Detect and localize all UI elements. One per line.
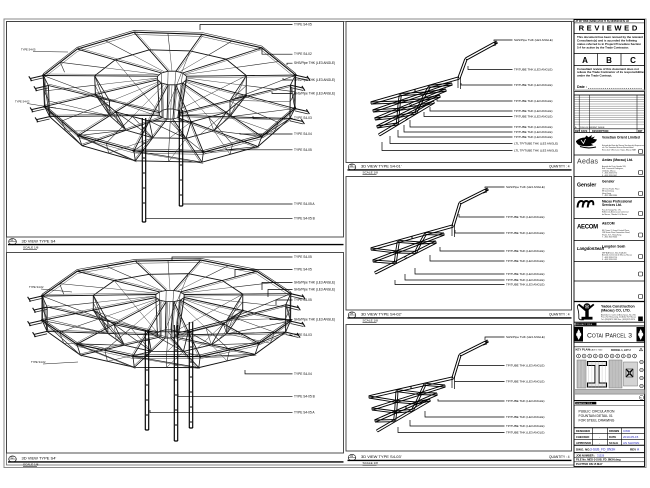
- svg-text:TYPE S4-05 B: TYPE S4-05 B: [294, 216, 315, 220]
- svg-text:TP/TUBE THK (LE3 ANGLE): TP/TUBE THK (LE3 ANGLE): [506, 278, 544, 282]
- svg-text:AS SHOWN: AS SHOWN: [623, 441, 639, 445]
- svg-text:DATE: DATE: [581, 130, 588, 133]
- svg-text:TP/TUBE THK (LE3 ANGLE): TP/TUBE THK (LE3 ANGLE): [514, 115, 552, 119]
- svg-text:DESIGNED: DESIGNED: [576, 429, 590, 433]
- svg-text:SHS/Pipe THK (LE3 ANGLE): SHS/Pipe THK (LE3 ANGLE): [294, 78, 335, 82]
- svg-text:DWG. NO.: DWG. NO.: [576, 448, 590, 452]
- svg-text:T + 852 2868 9380: T + 852 2868 9380: [602, 195, 617, 197]
- svg-text:2010-05-15: 2010-05-15: [623, 435, 639, 439]
- svg-text:CWD: CWD: [623, 429, 631, 433]
- svg-text:TP/TUBE THK (LE3 ANGLE): TP/TUBE THK (LE3 ANGLE): [506, 215, 544, 219]
- svg-text:A: A: [582, 56, 588, 65]
- svg-text:Tel : (853)2875 3382 Fax : (: Tel : (853)2875 3382 Fax : (853)2875 337…: [601, 319, 635, 321]
- svg-text:AECOM: AECOM: [577, 225, 598, 231]
- svg-text:TYPE S4-05: TYPE S4-05: [294, 255, 312, 259]
- svg-text:3D VIEW TYPE S4': 3D VIEW TYPE S4': [22, 456, 57, 461]
- svg-text:LTL TP/TUBE THK (LE3 ANGLE): LTL TP/TUBE THK (LE3 ANGLE): [514, 149, 558, 153]
- svg-text:PARCEL 1, LOT 2: PARCEL 1, LOT 2: [611, 349, 631, 352]
- svg-text:Langdon Seah: Langdon Seah: [602, 244, 625, 248]
- svg-text:TP/TUBE THK (LE3 ANGLE): TP/TUBE THK (LE3 ANGLE): [514, 99, 552, 103]
- svg-text:DESCRIPTION: DESCRIPTION: [592, 130, 609, 133]
- svg-text:-: -: [599, 436, 600, 439]
- svg-text:3-SUB_FD_8N3H: 3-SUB_FD_8N3H: [590, 448, 616, 452]
- svg-text:under the Trade Contract.: under the Trade Contract.: [577, 74, 612, 78]
- svg-text:TP/TUBE THK (LE3 ANGLE): TP/TUBE THK (LE3 ANGLE): [506, 415, 544, 419]
- svg-text:SHS/Pipe THK (LE3 ANGLE): SHS/Pipe THK (LE3 ANGLE): [506, 335, 545, 339]
- svg-text:TYPE S4-05: TYPE S4-05: [294, 298, 312, 302]
- svg-text:SCALE 1:7500: SCALE 1:7500: [589, 348, 603, 351]
- svg-text:-: -: [599, 442, 600, 445]
- svg-text:Aedas: Aedas: [577, 159, 599, 166]
- svg-text:T + 852 3922 9000: T + 852 3922 9000: [602, 237, 617, 239]
- svg-text:FOR STEEL DRAWING: FOR STEEL DRAWING: [579, 419, 615, 423]
- svg-text:TYPE S4-05: TYPE S4-05: [21, 48, 36, 52]
- svg-text:PUBLIC CIRCULATION: PUBLIC CIRCULATION: [579, 410, 615, 414]
- svg-text:TYPE S4-02: TYPE S4-02: [29, 285, 44, 289]
- svg-text:SHS/Pipe THK (LE3 ANGLE): SHS/Pipe THK (LE3 ANGLE): [514, 38, 553, 42]
- svg-text:SCALE 1/8: SCALE 1/8: [363, 461, 379, 465]
- svg-text:SCALE 1/8: SCALE 1/8: [363, 171, 379, 175]
- svg-text:TP/TUBE THK (LE3 ANGLE): TP/TUBE THK (LE3 ANGLE): [514, 68, 552, 72]
- svg-text:SCALE: SCALE: [609, 441, 618, 445]
- svg-text:3D VIEW TYPE S4-02': 3D VIEW TYPE S4-02': [361, 312, 402, 317]
- svg-text:TP/TUBE THK (LE3 ANGLE): TP/TUBE THK (LE3 ANGLE): [514, 130, 552, 134]
- svg-text:31526: 31526: [597, 453, 605, 457]
- svg-text:Executive Offices-L2, Taipa, M: Executive Offices-L2, Taipa, Macao SAR: [602, 148, 637, 151]
- svg-text:SHS/Pipe THK (LE3 ANGLE): SHS/Pipe THK (LE3 ANGLE): [294, 281, 335, 285]
- svg-text:TYPE S4-02: TYPE S4-02: [294, 52, 312, 56]
- svg-text:TP/TUBE THK (LE3 ANGLE): TP/TUBE THK (LE3 ANGLE): [506, 231, 544, 235]
- svg-text:Venetian Orient Limited: Venetian Orient Limited: [602, 136, 640, 140]
- svg-text:TP/TUBE THK (LE3 ANGLE): TP/TUBE THK (LE3 ANGLE): [506, 249, 544, 253]
- svg-text:TYPE S4-03: TYPE S4-03: [294, 333, 312, 337]
- svg-text:SCALE 1/8: SCALE 1/8: [23, 245, 39, 249]
- svg-text:INIT: INIT: [638, 130, 643, 133]
- svg-text:TYPE S4-05 A: TYPE S4-05 A: [294, 411, 315, 415]
- svg-text:DRAWN: DRAWN: [609, 429, 619, 433]
- svg-text:KEY PLAN: KEY PLAN: [576, 348, 590, 352]
- svg-text:AECOM: AECOM: [602, 221, 615, 225]
- svg-text:FILE No. MED-3-SUB_FD_8N3H.dwg: FILE No. MED-3-SUB_FD_8N3H.dwg: [576, 458, 621, 462]
- svg-text:SHS/Pipe THK (LE3 ANGLE): SHS/Pipe THK (LE3 ANGLE): [294, 61, 335, 65]
- svg-text:REV: REV: [630, 448, 636, 452]
- svg-text:(Macau) CO, LTD.: (Macau) CO, LTD.: [601, 309, 631, 313]
- svg-text:TP/TUBE THK (LE3 ANGLE): TP/TUBE THK (LE3 ANGLE): [506, 399, 544, 403]
- svg-text:TP/TUBE THK (LE3 ANGLE): TP/TUBE THK (LE3 ANGLE): [514, 83, 552, 87]
- svg-text:TYPE S4-05 B: TYPE S4-05 B: [294, 394, 315, 398]
- svg-text:TP/TUBE THK (LE3 ANGLE): TP/TUBE THK (LE3 ANGLE): [506, 380, 544, 384]
- svg-text:REVIEWED: REVIEWED: [579, 24, 640, 33]
- svg-text:Gensler: Gensler: [602, 179, 615, 183]
- svg-text:TP/TUBE THK (LE3 ANGLE): TP/TUBE THK (LE3 ANGLE): [514, 135, 552, 139]
- svg-text:SHS/Pipe THK (LE3 ANGLE): SHS/Pipe THK (LE3 ANGLE): [506, 185, 545, 189]
- svg-text:SHS/Pipe THK (LE3 ANGLE): SHS/Pipe THK (LE3 ANGLE): [294, 318, 335, 322]
- svg-text:REV: REV: [575, 130, 580, 133]
- svg-text:DATE: DATE: [609, 435, 616, 439]
- svg-text:C: C: [630, 56, 636, 65]
- svg-text:3D VIEW TYPE S4: 3D VIEW TYPE S4: [22, 238, 57, 243]
- svg-text:TP/TUBE THK (LE3 ANGLE): TP/TUBE THK (LE3 ANGLE): [506, 259, 544, 263]
- svg-text:Services Ltd.: Services Ltd.: [602, 203, 622, 207]
- svg-text:de Macau, 7 Andar F-G, Macau: de Macau, 7 Andar F-G, Macau: [602, 213, 627, 216]
- svg-text:TP/TUBE THK (LE3 ANGLE): TP/TUBE THK (LE3 ANGLE): [506, 424, 544, 428]
- svg-text:DRAWING TITLE: DRAWING TITLE: [576, 402, 593, 405]
- svg-text:QUANTITY : 4: QUANTITY : 4: [549, 313, 570, 317]
- svg-text:SCALE 1/8: SCALE 1/8: [363, 319, 379, 323]
- svg-text:TP/TUBE THK (LE3 ANGLE): TP/TUBE THK (LE3 ANGLE): [514, 125, 552, 129]
- svg-text:TYPE S4-05: TYPE S4-05: [294, 23, 312, 27]
- svg-text:QUANTITY : 4: QUANTITY : 4: [549, 455, 570, 459]
- svg-text:TP/TUBE THK (LE3 ANGLE): TP/TUBE THK (LE3 ANGLE): [506, 272, 544, 276]
- svg-text:JOB NUMBER :: JOB NUMBER :: [576, 453, 595, 457]
- svg-text:CHECKED: CHECKED: [576, 435, 589, 439]
- svg-text:TP/TUBE THK (LE3 ANGLE): TP/TUBE THK (LE3 ANGLE): [514, 109, 552, 113]
- svg-text:SHS/Pipe THK (LE3 ANGLE): SHS/Pipe THK (LE3 ANGLE): [294, 92, 335, 96]
- svg-text:APPROVED: APPROVED: [576, 441, 591, 445]
- svg-text:5.4 for action by the Trade Co: 5.4 for action by the Trade Contractor.: [577, 45, 629, 49]
- svg-text:3D VIEW TYPE S4-01': 3D VIEW TYPE S4-01': [361, 164, 402, 169]
- svg-text:F + 853 2833 1532: F + 853 2833 1532: [602, 259, 617, 261]
- svg-text:FOUNTAIN DETAIL 01: FOUNTAIN DETAIL 01: [579, 414, 613, 418]
- svg-text:PLOTTED ON 15 MAY: PLOTTED ON 15 MAY: [576, 462, 603, 466]
- svg-text:TYPE S4-04: TYPE S4-04: [294, 132, 312, 136]
- svg-text:QUANTITY : 4: QUANTITY : 4: [549, 165, 570, 169]
- svg-text:TP/TUBE THK (LE3 ANGLE): TP/TUBE THK (LE3 ANGLE): [506, 283, 544, 287]
- svg-text:TYPE S4-04: TYPE S4-04: [294, 372, 312, 376]
- svg-text:Date :: Date :: [577, 85, 587, 89]
- svg-text:Aedas (Macau) Ltd.: Aedas (Macau) Ltd.: [602, 158, 633, 162]
- svg-text:TYPE S4-05: TYPE S4-05: [294, 268, 312, 272]
- svg-text:COTAI PARCEL 3: COTAI PARCEL 3: [587, 332, 632, 339]
- svg-text:TYPE S4-02: TYPE S4-02: [31, 360, 46, 364]
- svg-text:LTL TP/TUBE THK (LE3 ANGLE): LTL TP/TUBE THK (LE3 ANGLE): [514, 142, 558, 146]
- svg-text:LangdonSeah: LangdonSeah: [577, 246, 605, 251]
- svg-text:TP/TUBE THK (LE3 ANGLE): TP/TUBE THK (LE3 ANGLE): [506, 364, 544, 368]
- svg-text:TYPE S4-05: TYPE S4-05: [294, 148, 312, 152]
- svg-text:B: B: [606, 56, 612, 65]
- svg-text:SHS/Pipe THK (LE3 ANGLE): SHS/Pipe THK (LE3 ANGLE): [294, 288, 335, 292]
- svg-text:3D VIEW TYPE S4-03': 3D VIEW TYPE S4-03': [361, 454, 402, 459]
- svg-text:Gensler: Gensler: [577, 183, 596, 189]
- svg-text:TYPE S4-03: TYPE S4-03: [294, 116, 312, 120]
- svg-text:TYPE S4-05 A: TYPE S4-05 A: [294, 202, 315, 206]
- svg-text:TP/TUBE THK (LE3 ANGLE): TP/TUBE THK (LE3 ANGLE): [506, 431, 544, 435]
- svg-text:TYPE S4-02: TYPE S4-02: [15, 100, 30, 104]
- svg-text:SCALE 1/8: SCALE 1/8: [23, 463, 39, 467]
